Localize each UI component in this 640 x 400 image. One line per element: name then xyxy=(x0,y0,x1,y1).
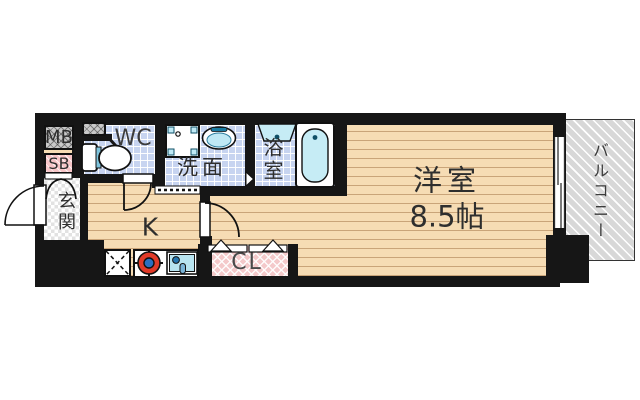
fixtures-overlay xyxy=(0,0,640,400)
main-room-size: 8.5帖 xyxy=(409,203,484,232)
balcony-label: バルコニー xyxy=(591,142,607,242)
bathroom-label: 浴室 xyxy=(262,137,282,183)
room-door-swing-icon xyxy=(200,202,239,237)
kitchen-label: K xyxy=(142,215,158,240)
refrigerator-space-icon xyxy=(106,251,129,275)
kitchen-sink-icon xyxy=(167,252,197,274)
entrance-label: 玄関 xyxy=(56,191,74,233)
floorplan-canvas: MB SB WC 玄関 洗面 浴室 K CL 洋室 8.5帖 バルコニー xyxy=(0,0,640,400)
main-room-label: 洋室 xyxy=(413,167,481,196)
washing-machine-icon xyxy=(166,125,199,157)
bath-door-marker xyxy=(246,172,254,186)
washroom-label: 洗面 xyxy=(177,158,227,179)
gas-stove-icon xyxy=(135,249,163,277)
meter-box-label: MB xyxy=(45,129,73,147)
closet-label: CL xyxy=(231,252,263,274)
entrance-door-swing-icon xyxy=(5,185,46,225)
washroom-threshold xyxy=(155,186,200,194)
shaft-box-label: SB xyxy=(48,156,69,172)
bathtub-icon xyxy=(296,123,334,187)
basin-icon xyxy=(203,127,236,149)
toilet-label: WC xyxy=(114,128,151,150)
wc-door-swing-icon xyxy=(123,174,153,210)
sliding-window-icon xyxy=(554,137,565,228)
